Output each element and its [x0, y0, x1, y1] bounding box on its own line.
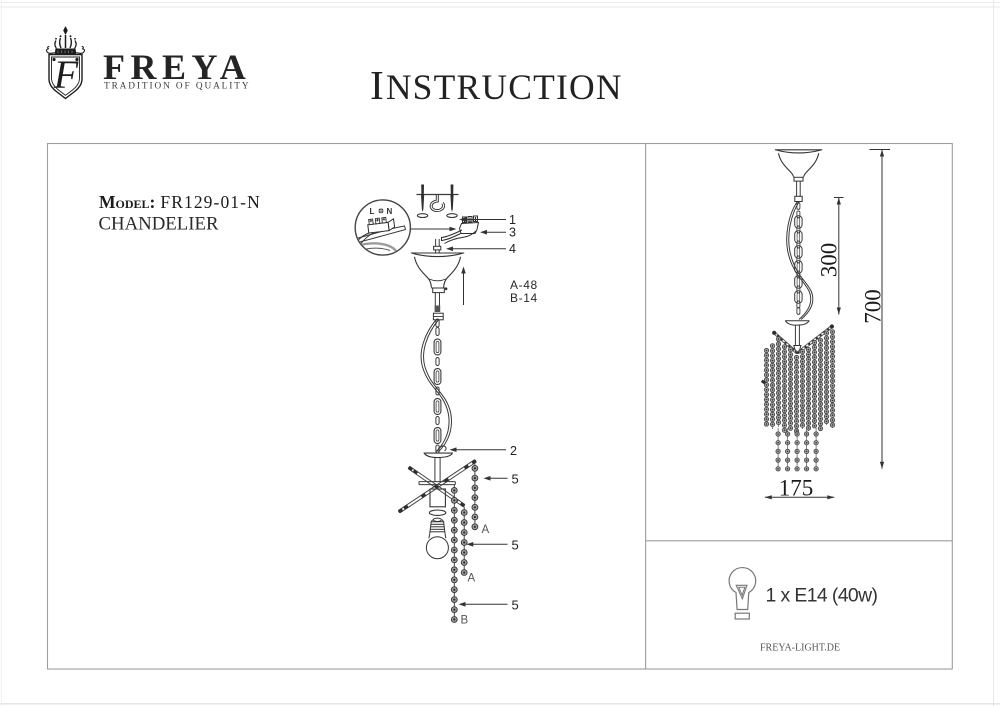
svg-text:A-48: A-48: [510, 278, 538, 292]
svg-text:A: A: [482, 524, 490, 536]
svg-text:1 x E14 (40w): 1 x E14 (40w): [766, 584, 878, 606]
svg-text:3: 3: [509, 226, 516, 240]
svg-text:L: L: [370, 207, 375, 216]
svg-text:5: 5: [512, 537, 519, 552]
svg-text:5: 5: [512, 471, 519, 486]
svg-text:2: 2: [510, 444, 517, 458]
svg-text:INSTRUCTION: INSTRUCTION: [370, 62, 623, 108]
svg-text:F: F: [53, 52, 79, 97]
svg-text:CHANDELIER: CHANDELIER: [99, 214, 219, 235]
svg-text:5: 5: [512, 597, 519, 612]
svg-text:B-14: B-14: [510, 291, 538, 305]
svg-text:N: N: [387, 207, 393, 216]
svg-text:4: 4: [509, 242, 516, 256]
svg-text:A: A: [468, 573, 476, 585]
svg-text:700: 700: [860, 289, 885, 324]
svg-text:Model:FR129-01-N: Model:FR129-01-N: [99, 192, 261, 212]
svg-text:TRADITION OF QUALITY: TRADITION OF QUALITY: [104, 82, 250, 92]
svg-text:FREYA-LIGHT.DE: FREYA-LIGHT.DE: [760, 643, 840, 654]
svg-text:B: B: [461, 615, 469, 627]
svg-text:175: 175: [779, 476, 814, 501]
svg-text:300: 300: [817, 243, 842, 278]
